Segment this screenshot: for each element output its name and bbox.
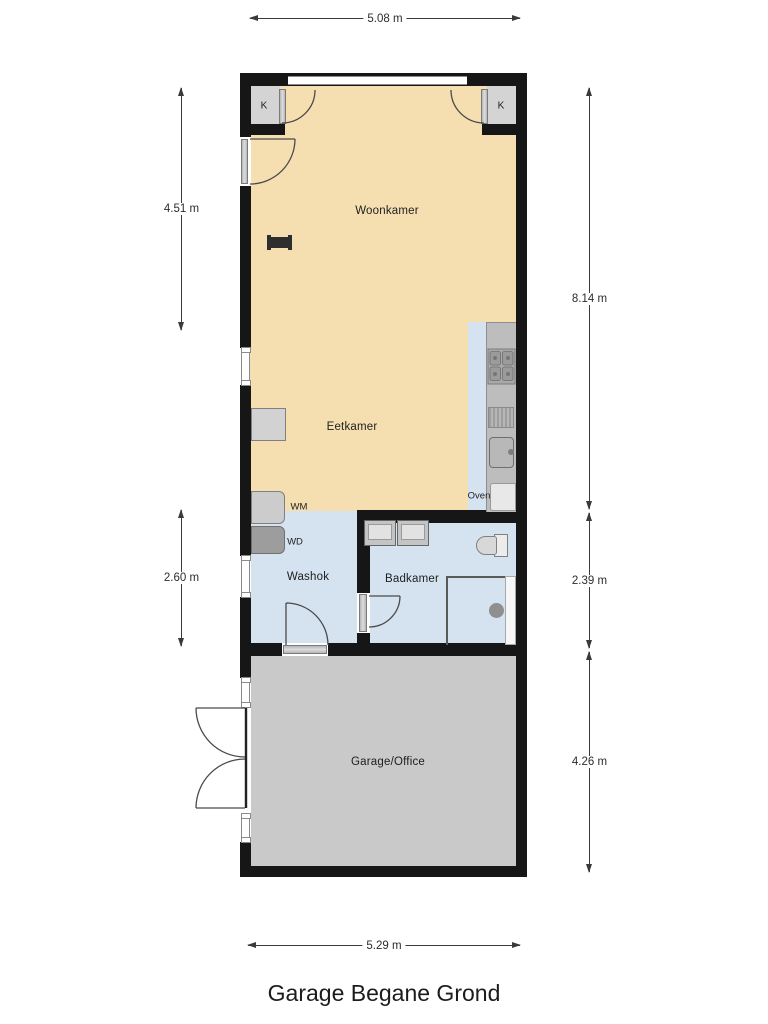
wall-left-2	[240, 186, 251, 348]
page-title: Garage Begane Grond	[0, 980, 768, 1007]
wall-left-4	[240, 597, 251, 678]
oven-appliance	[490, 483, 516, 511]
badkamer-door-panel	[359, 594, 367, 632]
floorplan-page: Woonkamer Eetkamer Washok Badkamer Garag…	[0, 0, 768, 1024]
room-label-badkamer: Badkamer	[385, 573, 439, 585]
closet-right-door-panel	[481, 89, 488, 124]
window-top	[288, 76, 467, 85]
room-label-eetkamer: Eetkamer	[327, 421, 378, 433]
shower-wall-left	[446, 576, 448, 645]
dimension-right-middle: 2.39 m	[589, 513, 590, 648]
wall-closet-right-bottom	[482, 124, 527, 135]
dimension-left-lower: 2.60 m	[181, 510, 182, 646]
garage-door-bottom-arc	[196, 759, 245, 808]
wall-left-3	[240, 385, 251, 556]
dimension-bottom: 5.29 m	[248, 945, 520, 946]
dimension-right-lower-label: 4.26 m	[568, 756, 611, 768]
window-garage-upper	[241, 678, 250, 707]
dimension-bottom-label: 5.29 m	[362, 940, 405, 952]
washing-machine	[251, 491, 285, 524]
dimension-right-lower: 4.26 m	[589, 652, 590, 872]
window-garage-lower	[241, 814, 250, 842]
dryer	[251, 526, 285, 554]
window-left-washok	[241, 556, 250, 597]
dimension-top-label: 5.08 m	[363, 13, 406, 25]
opening-garage-doors	[240, 707, 251, 814]
label-oven: Oven	[468, 491, 491, 502]
closet-left-door-panel	[279, 89, 286, 124]
kitchen-tap-icon	[508, 449, 514, 455]
dimension-top: 5.08 m	[250, 18, 520, 19]
wall-closet-left-bottom	[240, 124, 285, 135]
label-closet-right: K	[498, 101, 505, 112]
toilet-bowl	[476, 536, 497, 555]
room-label-washok: Washok	[287, 571, 329, 583]
window-left-eetkamer	[241, 348, 250, 385]
dimension-right-upper: 8.14 m	[589, 88, 590, 509]
bathroom-sink-left	[364, 520, 396, 546]
dimension-left-upper: 4.51 m	[181, 88, 182, 330]
radiator	[267, 237, 292, 248]
shower-glass-panel	[505, 576, 516, 645]
kitchen-drainer	[488, 407, 514, 428]
shower-drain	[489, 603, 504, 618]
dimension-right-middle-label: 2.39 m	[568, 575, 611, 587]
room-label-garage: Garage/Office	[351, 756, 425, 768]
label-closet-left: K	[261, 101, 268, 112]
garage-door-top-arc	[196, 708, 245, 757]
label-washer: WM	[291, 502, 308, 513]
wall-right	[516, 73, 527, 877]
entry-door-panel	[241, 139, 248, 184]
dimension-left-upper-label: 4.51 m	[160, 203, 203, 215]
wall-bottom	[240, 866, 527, 877]
eetkamer-cabinet	[251, 408, 286, 441]
wall-left-5	[240, 842, 251, 877]
dimension-left-lower-label: 2.60 m	[160, 572, 203, 584]
room-label-woonkamer: Woonkamer	[355, 205, 419, 217]
dimension-right-upper-label: 8.14 m	[568, 293, 611, 305]
washok-door-threshold	[283, 645, 327, 654]
bathroom-sink-right	[397, 520, 429, 546]
label-dryer: WD	[287, 537, 303, 548]
